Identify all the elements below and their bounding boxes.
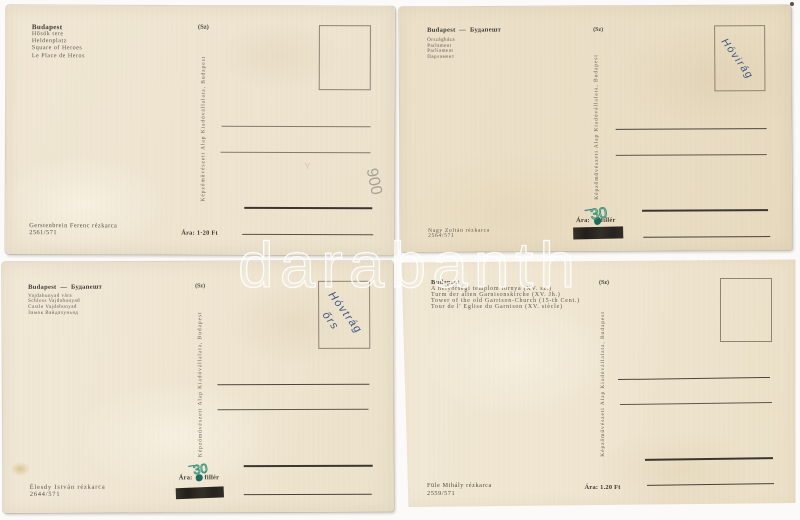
svg-text:darabanth: darabanth bbox=[238, 229, 575, 301]
